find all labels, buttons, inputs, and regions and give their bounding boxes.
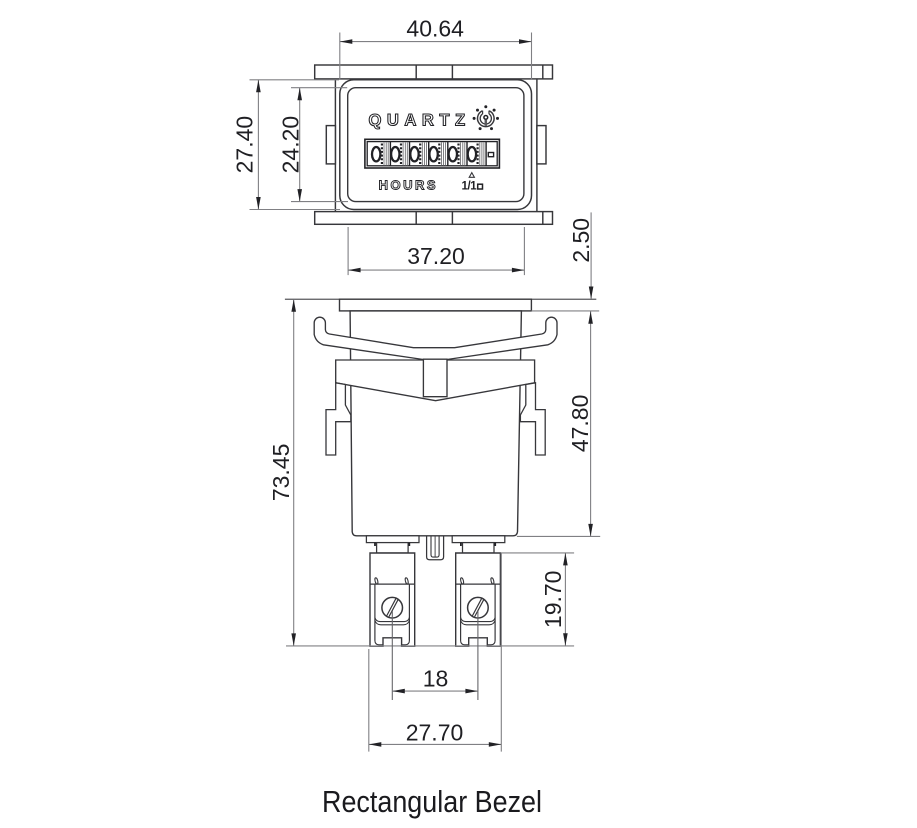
svg-text:47.80: 47.80 xyxy=(567,395,593,453)
svg-text:QUARTZ: QUARTZ xyxy=(369,111,471,130)
svg-text:27.70: 27.70 xyxy=(406,720,464,746)
svg-text:37.20: 37.20 xyxy=(407,243,465,269)
svg-text:1/1: 1/1 xyxy=(462,180,478,192)
svg-text:27.40: 27.40 xyxy=(232,116,258,174)
svg-text:2.50: 2.50 xyxy=(568,218,594,263)
svg-text:19.70: 19.70 xyxy=(540,571,566,629)
svg-text:18: 18 xyxy=(423,666,449,692)
svg-text:40.64: 40.64 xyxy=(406,16,464,42)
svg-text:24.20: 24.20 xyxy=(278,116,304,174)
svg-text:HOURS: HOURS xyxy=(379,177,438,192)
svg-text:Rectangular Bezel: Rectangular Bezel xyxy=(322,786,542,820)
svg-text:73.45: 73.45 xyxy=(268,444,294,502)
